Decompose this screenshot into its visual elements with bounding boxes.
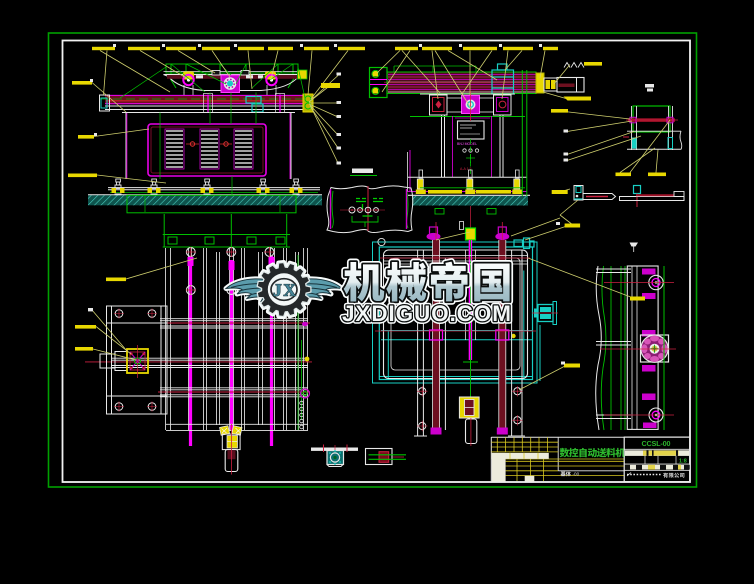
svg-text:-00: -00 <box>573 472 580 477</box>
svg-text:BNJ MODEL: BNJ MODEL <box>457 142 477 146</box>
